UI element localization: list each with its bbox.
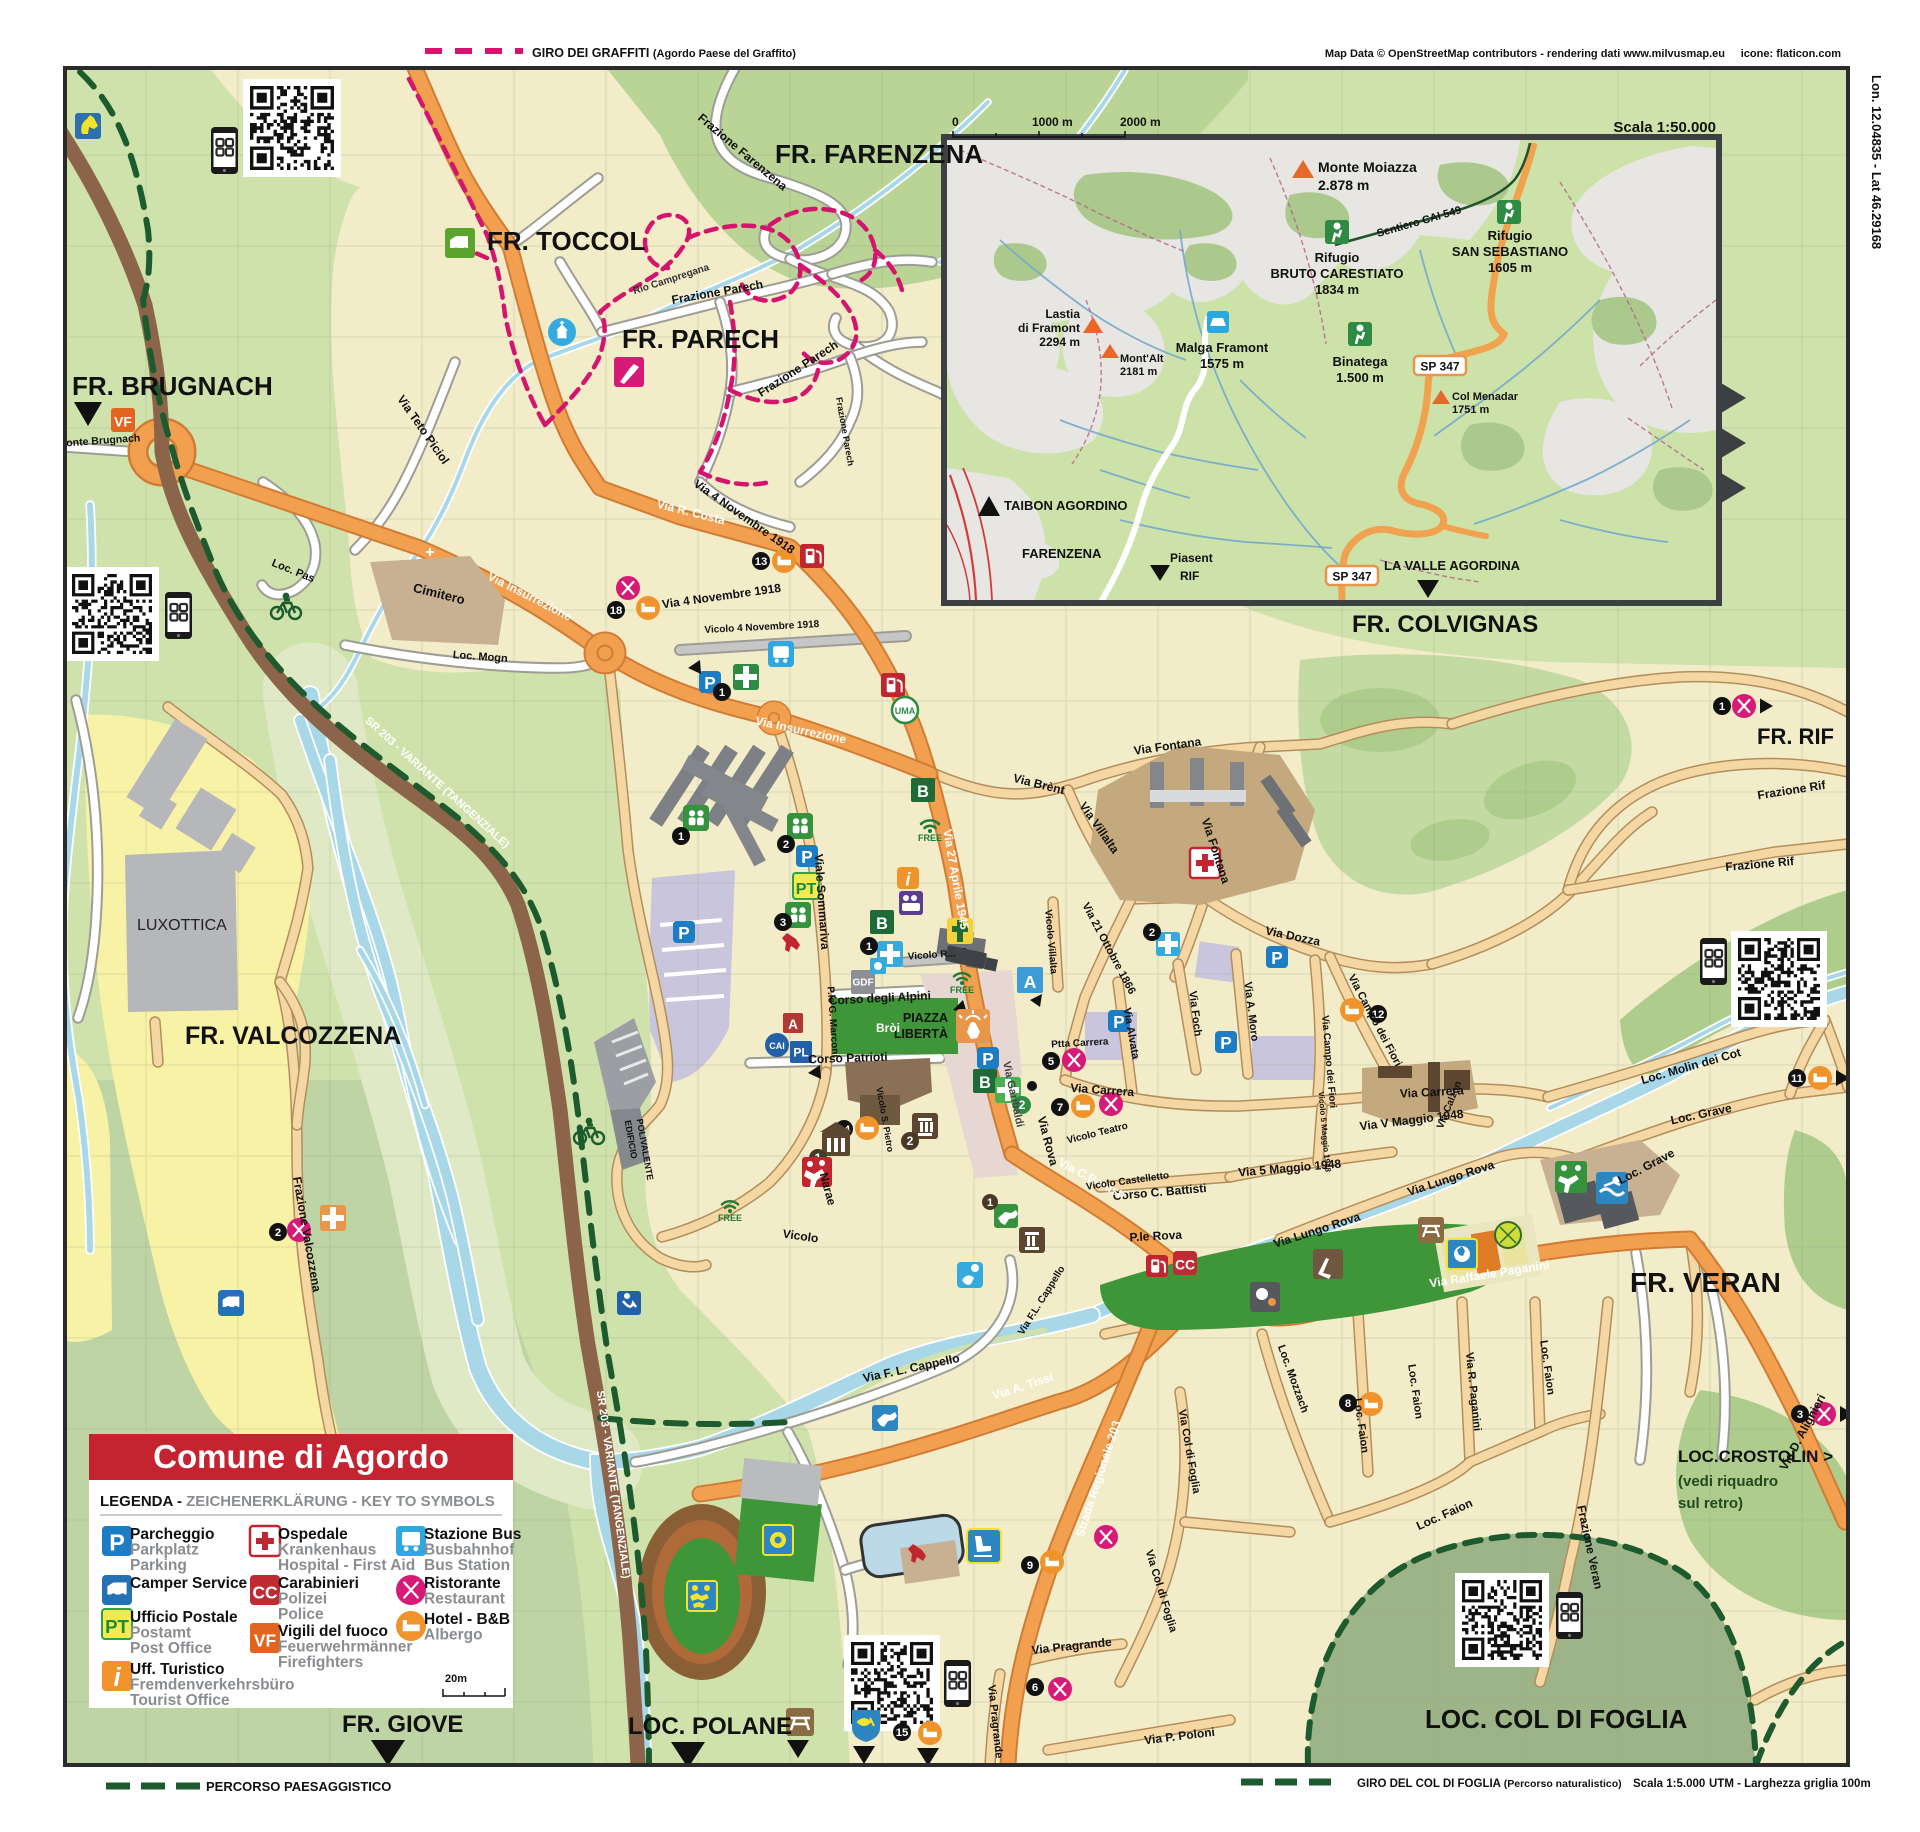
svg-text:i: i	[905, 868, 911, 889]
svg-text:FARENZENA: FARENZENA	[1022, 546, 1102, 561]
svg-text:PIAZZA: PIAZZA	[903, 1011, 948, 1025]
svg-text:i: i	[113, 1664, 121, 1692]
svg-text:Uff. Turistico: Uff. Turistico	[130, 1661, 224, 1678]
svg-text:Lastia: Lastia	[1045, 307, 1080, 321]
svg-text:1: 1	[719, 687, 725, 699]
svg-text:icone: flaticon.com: icone: flaticon.com	[1741, 48, 1841, 60]
svg-text:LEGENDA - ZEICHENERKLÄRUNG - K: LEGENDA - ZEICHENERKLÄRUNG - KEY TO SYMB…	[100, 1493, 495, 1510]
svg-text:LOC.CROSTOLIN >: LOC.CROSTOLIN >	[1678, 1447, 1833, 1466]
svg-text:PT: PT	[796, 880, 817, 898]
svg-text:Bròi: Bròi	[876, 1021, 900, 1035]
svg-text:Tourist Office: Tourist Office	[130, 1692, 230, 1709]
svg-text:P: P	[1271, 948, 1282, 968]
svg-text:(vedi riquadro: (vedi riquadro	[1678, 1473, 1778, 1490]
svg-text:Rifugio: Rifugio	[1315, 250, 1360, 265]
svg-text:Malga Framont: Malga Framont	[1176, 340, 1269, 355]
svg-text:Fremdenverkehrsbüro: Fremdenverkehrsbüro	[130, 1677, 295, 1694]
svg-text:Postamt: Postamt	[130, 1625, 191, 1642]
svg-text:Binatega: Binatega	[1333, 354, 1389, 369]
svg-text:UMA: UMA	[895, 706, 916, 716]
svg-text:FREE: FREE	[918, 833, 942, 843]
svg-text:Comune di Agordo: Comune di Agordo	[153, 1438, 449, 1475]
svg-text:Map Data © OpenStreetMap contr: Map Data © OpenStreetMap contributors - …	[1325, 48, 1725, 60]
svg-text:PERCORSO PAESAGGISTICO: PERCORSO PAESAGGISTICO	[206, 1779, 391, 1794]
svg-text:Polizei: Polizei	[278, 1591, 327, 1608]
svg-text:2181 m: 2181 m	[1120, 366, 1158, 378]
svg-text:2: 2	[1149, 927, 1155, 939]
svg-text:FR. VERAN: FR. VERAN	[1630, 1267, 1781, 1298]
svg-text:Col Menadar: Col Menadar	[1452, 391, 1519, 403]
svg-text:LA VALLE AGORDINA: LA VALLE AGORDINA	[1384, 558, 1521, 573]
svg-text:2: 2	[783, 839, 789, 851]
svg-text:9: 9	[1027, 1560, 1033, 1572]
svg-text:Feuerwehrmänner: Feuerwehrmänner	[278, 1639, 412, 1656]
svg-text:5: 5	[1048, 1056, 1054, 1068]
svg-text:1: 1	[1719, 701, 1725, 713]
svg-text:Corso Patrioti: Corso Patrioti	[808, 1050, 888, 1067]
svg-text:A: A	[1024, 972, 1037, 992]
svg-text:LUXOTTICA: LUXOTTICA	[137, 917, 227, 934]
svg-text:Parcheggio: Parcheggio	[130, 1526, 214, 1543]
svg-text:Parkplatz: Parkplatz	[130, 1542, 199, 1559]
svg-text:Police: Police	[278, 1606, 324, 1623]
svg-text:FREE: FREE	[950, 985, 974, 995]
svg-text:RIF: RIF	[1180, 569, 1199, 583]
svg-text:SP 347: SP 347	[1332, 570, 1371, 584]
svg-text:Busbahnhof: Busbahnhof	[424, 1542, 515, 1559]
svg-text:0: 0	[952, 115, 959, 129]
svg-text:Krankenhaus: Krankenhaus	[278, 1542, 376, 1559]
svg-text:Post Office: Post Office	[130, 1640, 212, 1657]
svg-text:Ospedale: Ospedale	[278, 1526, 348, 1543]
svg-text:LOC. COL DI FOGLIA: LOC. COL DI FOGLIA	[1425, 1704, 1688, 1734]
svg-text:CC: CC	[1175, 1257, 1195, 1273]
svg-text:PT: PT	[105, 1616, 129, 1637]
svg-text:Hotel - B&B: Hotel - B&B	[424, 1611, 510, 1628]
svg-text:Ufficio Postale: Ufficio Postale	[130, 1609, 238, 1626]
svg-text:P: P	[109, 1530, 125, 1556]
svg-text:2: 2	[907, 1134, 914, 1148]
svg-text:GDF: GDF	[852, 978, 873, 989]
svg-text:FR. BRUGNACH: FR. BRUGNACH	[72, 371, 273, 401]
svg-text:Monte Moiazza: Monte Moiazza	[1318, 159, 1417, 175]
svg-text:FR. RIF: FR. RIF	[1757, 724, 1834, 749]
svg-text:LOC. POLANE: LOC. POLANE	[628, 1713, 792, 1740]
svg-text:Scala 1:50.000: Scala 1:50.000	[1613, 119, 1716, 136]
svg-text:Scala 1:5.000: Scala 1:5.000	[1633, 1778, 1705, 1790]
svg-text:P: P	[678, 923, 689, 943]
svg-text:15: 15	[896, 1727, 909, 1739]
svg-text:1575 m: 1575 m	[1200, 356, 1244, 371]
svg-text:FR. GIOVE: FR. GIOVE	[342, 1711, 463, 1738]
svg-text:1834 m: 1834 m	[1315, 282, 1359, 297]
svg-text:Restaurant: Restaurant	[424, 1591, 505, 1608]
svg-text:P: P	[982, 1049, 993, 1069]
svg-text:2: 2	[275, 1227, 281, 1239]
svg-text:Vigili del fuoco: Vigili del fuoco	[278, 1623, 388, 1640]
svg-text:8: 8	[1345, 1398, 1351, 1410]
svg-text:P.le Rova: P.le Rova	[1129, 1228, 1182, 1245]
svg-text:1000 m: 1000 m	[1032, 115, 1073, 129]
svg-text:VF: VF	[254, 1630, 276, 1650]
svg-text:Camper Service: Camper Service	[130, 1575, 248, 1592]
svg-text:1.500 m: 1.500 m	[1336, 370, 1384, 385]
svg-text:1: 1	[678, 831, 684, 843]
svg-text:Lon. 12.04835 - Lat 46.29168: Lon. 12.04835 - Lat 46.29168	[1869, 75, 1884, 249]
svg-text:Rifugio: Rifugio	[1488, 228, 1533, 243]
svg-text:20m: 20m	[445, 1673, 467, 1685]
svg-text:1: 1	[866, 941, 872, 953]
svg-text:SAN SEBASTIANO: SAN SEBASTIANO	[1452, 244, 1568, 259]
svg-text:Ristorante: Ristorante	[424, 1575, 501, 1592]
svg-text:Mont'Alt: Mont'Alt	[1120, 353, 1164, 365]
svg-text:BRUTO CARESTIATO: BRUTO CARESTIATO	[1271, 266, 1404, 281]
svg-text:3: 3	[780, 917, 786, 929]
svg-text:B: B	[876, 915, 888, 933]
svg-text:FR. COLVIGNAS: FR. COLVIGNAS	[1352, 611, 1538, 638]
svg-text:2.878 m: 2.878 m	[1318, 177, 1369, 193]
svg-text:LIBERTÀ: LIBERTÀ	[894, 1026, 948, 1041]
svg-text:FR. FARENZENA: FR. FARENZENA	[775, 139, 983, 169]
svg-text:A: A	[788, 1017, 798, 1032]
svg-text:TAIBON AGORDINO: TAIBON AGORDINO	[1004, 498, 1128, 513]
svg-text:6: 6	[1032, 1682, 1038, 1694]
svg-text:2000 m: 2000 m	[1120, 115, 1161, 129]
svg-text:B: B	[979, 1074, 991, 1092]
svg-text:13: 13	[755, 556, 768, 568]
svg-text:Stazione Bus: Stazione Bus	[424, 1526, 521, 1543]
svg-text:Firefighters: Firefighters	[278, 1654, 363, 1671]
svg-text:CAI: CAI	[769, 1041, 785, 1051]
svg-text:GIRO DEI GRAFFITI (Agordo Paes: GIRO DEI GRAFFITI (Agordo Paese del Graf…	[532, 46, 796, 60]
svg-text:FR. TOCCOL: FR. TOCCOL	[487, 226, 646, 256]
svg-text:7: 7	[1057, 1102, 1063, 1114]
svg-text:18: 18	[610, 605, 623, 617]
svg-text:VF: VF	[114, 414, 132, 430]
svg-text:P: P	[801, 847, 812, 867]
svg-text:1605 m: 1605 m	[1488, 260, 1532, 275]
svg-text:sul retro): sul retro)	[1678, 1495, 1743, 1512]
svg-text:GIRO DEL COL DI FOGLIA (Percor: GIRO DEL COL DI FOGLIA (Percorso natural…	[1357, 1778, 1622, 1790]
svg-text:Bus Station: Bus Station	[424, 1557, 510, 1574]
svg-text:Parking: Parking	[130, 1557, 187, 1574]
svg-text:1751 m: 1751 m	[1452, 404, 1490, 416]
svg-text:CC: CC	[252, 1582, 278, 1602]
svg-text:11: 11	[1791, 1073, 1803, 1085]
svg-text:P: P	[1220, 1033, 1231, 1053]
svg-text:Hospital - First Aid: Hospital - First Aid	[278, 1557, 415, 1574]
svg-text:FREE: FREE	[718, 1213, 742, 1223]
svg-text:UTM - Larghezza griglia 100m: UTM - Larghezza griglia 100m	[1709, 1778, 1871, 1790]
svg-text:FR. VALCOZZENA: FR. VALCOZZENA	[185, 1022, 401, 1050]
svg-text:SP 347: SP 347	[1420, 360, 1459, 374]
svg-text:di Framont: di Framont	[1018, 321, 1080, 335]
svg-text:B: B	[917, 783, 929, 801]
svg-text:1: 1	[987, 1197, 993, 1209]
svg-text:Piasent: Piasent	[1170, 551, 1213, 565]
svg-text:2294 m: 2294 m	[1039, 335, 1080, 349]
svg-text:PL: PL	[793, 1045, 808, 1059]
svg-text:Carabinieri: Carabinieri	[278, 1575, 359, 1592]
svg-text:FR. PARECH: FR. PARECH	[622, 324, 779, 354]
svg-text:Albergo: Albergo	[424, 1627, 483, 1644]
